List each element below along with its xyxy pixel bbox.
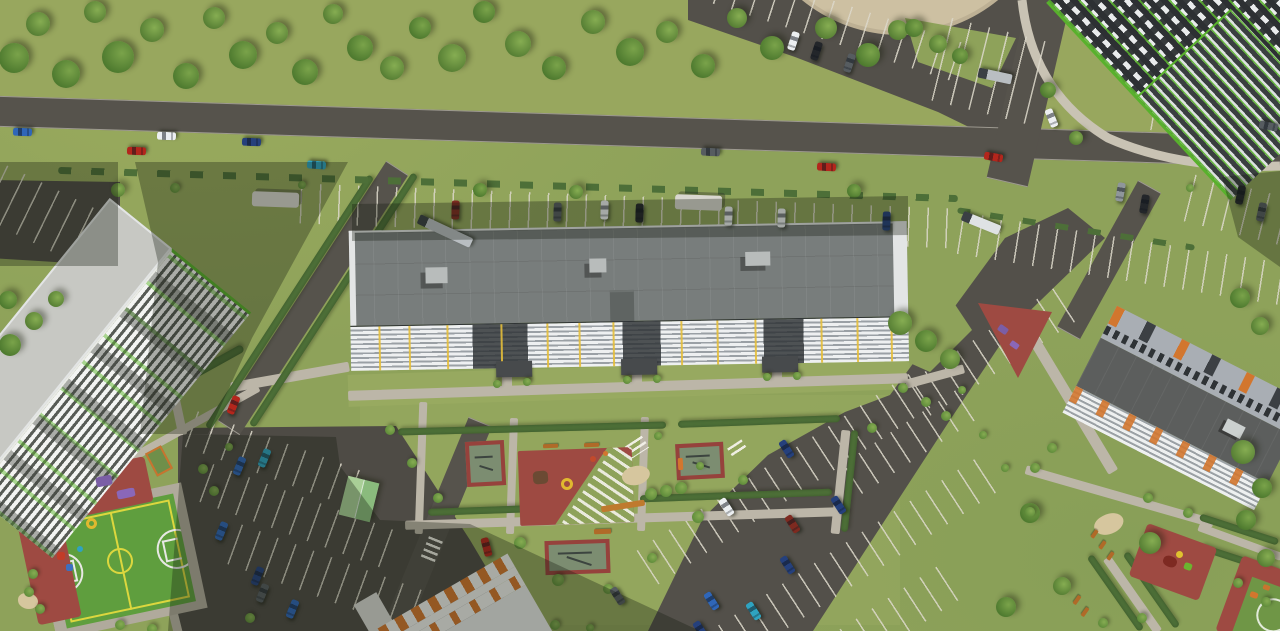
play-equipment: [1176, 551, 1183, 558]
tree: [323, 4, 343, 24]
apartment-building-central: [349, 221, 910, 383]
cast-shadow: [0, 0, 1280, 631]
car: [787, 31, 800, 52]
green-island: [0, 0, 1280, 631]
car: [882, 211, 891, 230]
car: [810, 41, 823, 62]
tree: [25, 312, 43, 330]
bush: [1143, 493, 1153, 503]
parking-stall-lines: [686, 450, 1010, 631]
truck: [977, 68, 1012, 85]
car: [1256, 202, 1268, 222]
bush: [35, 604, 45, 614]
workout-area: [544, 539, 610, 575]
tree: [347, 35, 373, 61]
bush: [941, 411, 951, 421]
tree: [505, 31, 531, 57]
bush: [958, 386, 966, 394]
facade-white-stripes: [1062, 386, 1267, 510]
apartment-building-bottom: [378, 554, 553, 631]
parking-stall-lines: [1150, 97, 1280, 154]
sports-court-pad: [30, 482, 207, 631]
hedge-row: [957, 207, 1195, 250]
footpath: [637, 417, 649, 531]
green-islands-layer: [0, 0, 1280, 631]
hedge-row: [1087, 554, 1144, 631]
cast-shadow: [0, 0, 1280, 631]
sports-court: [44, 493, 196, 628]
car: [724, 206, 733, 225]
tree: [691, 54, 715, 78]
footpath: [158, 336, 188, 436]
court-arc-left: [44, 549, 87, 596]
green-island: [0, 0, 1280, 631]
play-equipment: [1262, 584, 1270, 591]
bush: [654, 432, 662, 440]
play-equipment-layer: [0, 0, 1280, 631]
parking-stall-lines: [0, 166, 119, 273]
car: [232, 456, 247, 477]
tree: [1252, 478, 1272, 498]
workout-area: [675, 442, 725, 480]
car: [609, 586, 626, 606]
car: [692, 620, 709, 631]
tree: [409, 17, 431, 39]
car: [257, 448, 272, 469]
facade-yellow-accent: [680, 321, 683, 365]
bush: [586, 624, 594, 631]
benches-layer: [0, 0, 1280, 631]
play-equipment: [95, 474, 113, 487]
tree: [727, 8, 747, 28]
bush: [692, 511, 704, 523]
bench: [543, 444, 558, 449]
tree: [1236, 510, 1256, 530]
tree: [940, 349, 960, 369]
play-equipment: [603, 451, 608, 456]
parking-lot-asphalt: [0, 0, 1280, 631]
tree: [0, 334, 21, 356]
parking-stall-lines: [185, 411, 362, 507]
road: [1057, 180, 1161, 340]
tree: [1053, 577, 1071, 595]
car: [777, 208, 786, 227]
footpath: [632, 370, 642, 386]
facade-orange-band: [378, 554, 515, 631]
bush: [675, 482, 687, 494]
bush: [653, 375, 661, 383]
plaza-circle: [745, 0, 1055, 35]
parking-lot-asphalt: [0, 0, 1280, 631]
tree: [815, 17, 837, 39]
car: [307, 160, 327, 169]
aerial-render-residential-complex: [0, 0, 1280, 631]
mini-court: [1232, 577, 1280, 631]
bush: [24, 587, 34, 597]
car: [600, 200, 609, 219]
footpaths-layer: [0, 0, 1280, 631]
bush: [898, 383, 908, 393]
road: [218, 161, 409, 435]
hedge-row: [58, 167, 958, 202]
bush: [433, 493, 443, 503]
tree: [847, 184, 861, 198]
car: [480, 537, 493, 557]
footpath: [1197, 523, 1280, 561]
tree: [48, 291, 64, 307]
play-equipment: [532, 470, 548, 484]
court-key-right: [162, 538, 182, 563]
facade-yellow-accent: [754, 320, 757, 364]
car: [703, 591, 720, 611]
crosswalk: [727, 439, 748, 458]
apartment-building-left: [0, 198, 251, 558]
entrance-canopy: [496, 361, 532, 378]
footpath: [502, 372, 512, 388]
play-equipment: [57, 552, 65, 560]
footpath: [1025, 465, 1215, 527]
utility-shed: [339, 476, 380, 523]
bush: [1030, 463, 1040, 473]
bush: [1183, 508, 1193, 518]
bench: [1072, 595, 1081, 605]
footpath: [1029, 336, 1118, 475]
central-playground: [518, 447, 635, 526]
facade-yellow-accent: [716, 320, 719, 364]
facade-white-band: [385, 567, 519, 631]
parking-stall-lines: [637, 366, 944, 585]
hedge-row: [59, 344, 245, 452]
tree: [438, 44, 466, 72]
tree: [473, 1, 495, 23]
car: [1115, 182, 1126, 202]
bush: [170, 183, 180, 193]
hedges-layer: [0, 0, 1280, 631]
bush: [1233, 578, 1243, 588]
facade-green-accents: [1048, 0, 1280, 198]
tree: [292, 59, 318, 85]
car: [451, 200, 460, 219]
court-boundary-line: [50, 499, 190, 622]
bush: [1261, 597, 1271, 607]
hedge-row: [428, 503, 590, 516]
bush: [1098, 618, 1108, 628]
kids-playground: [1215, 555, 1280, 631]
bush: [209, 486, 219, 496]
facade-orange-band: [389, 573, 525, 631]
bush: [245, 613, 255, 623]
truck: [961, 211, 1002, 235]
kids-playground: [1129, 523, 1218, 601]
tree: [888, 311, 912, 335]
footpath: [772, 368, 782, 384]
footpath: [405, 507, 841, 530]
lawn-strip: [360, 395, 900, 625]
parking-stall-lines: [1184, 175, 1280, 246]
tree: [1230, 288, 1250, 308]
bush: [147, 624, 157, 631]
playground-surface: [46, 456, 153, 522]
bush: [514, 537, 526, 549]
bush: [738, 475, 748, 485]
parking-stall-lines: [728, 560, 968, 631]
bench: [1098, 540, 1106, 550]
tree: [915, 330, 937, 352]
car: [1258, 120, 1278, 132]
car: [843, 53, 856, 74]
hedge-row: [640, 489, 832, 503]
parking-stall-lines: [199, 464, 405, 572]
bus-shelter: [675, 194, 722, 211]
roof-parapet: [349, 231, 357, 326]
facade-yellow-accent: [890, 317, 893, 361]
play-equipment: [561, 478, 573, 490]
cast-shadow: [0, 0, 1280, 631]
tree: [102, 41, 134, 73]
bush: [645, 488, 657, 500]
bush: [763, 373, 771, 381]
footpath: [125, 384, 260, 464]
car: [242, 138, 261, 147]
court-key-left: [58, 560, 78, 585]
footpath: [39, 321, 232, 435]
bush: [793, 372, 801, 380]
play-equipment: [1183, 562, 1193, 571]
facade-yellow-accent: [856, 318, 859, 362]
mini-court-circle: [1252, 594, 1280, 631]
tree: [266, 22, 288, 44]
playground-stripe-pattern: [562, 447, 634, 526]
tree: [1069, 131, 1083, 145]
parking-stall-lines: [909, 284, 1082, 416]
sandbox: [1091, 508, 1127, 540]
building-roof: [349, 221, 909, 326]
car: [214, 521, 229, 542]
crosswalk: [420, 536, 443, 564]
bush: [298, 181, 306, 189]
balance-beam: [601, 500, 645, 513]
bush: [1025, 507, 1035, 517]
bush: [493, 380, 501, 388]
footpath: [16, 471, 65, 631]
tree: [905, 19, 923, 37]
bush: [1186, 184, 1194, 192]
car: [226, 395, 241, 416]
court-midline: [110, 512, 133, 610]
footpath: [1103, 556, 1162, 631]
play-equipment: [1009, 340, 1020, 350]
car: [718, 497, 735, 517]
lawn-strip: [348, 357, 911, 407]
road: [381, 417, 492, 631]
parking-lot-asphalt: [0, 0, 1280, 631]
bench: [584, 443, 599, 448]
workout-area: [465, 440, 506, 487]
car: [250, 566, 265, 587]
bush: [979, 431, 987, 439]
tree: [173, 63, 199, 89]
tree: [888, 20, 908, 40]
car: [701, 148, 720, 157]
car: [745, 601, 762, 621]
car: [983, 151, 1003, 162]
car: [553, 202, 562, 221]
lawn-layer: [0, 0, 1280, 631]
bush: [660, 485, 672, 497]
facade-yellow-accent: [820, 319, 823, 363]
bush: [115, 620, 125, 630]
car: [285, 599, 300, 620]
playground-grass-cut: [549, 447, 634, 526]
tree: [760, 36, 784, 60]
truck: [417, 214, 474, 248]
building-roof: [396, 585, 553, 631]
tree: [952, 48, 968, 64]
road: [0, 96, 1280, 168]
curved-sidewalk: [0, 0, 1280, 631]
tree: [0, 43, 29, 73]
hedge-row: [398, 421, 666, 435]
bush: [407, 458, 417, 468]
building-roof: [1076, 338, 1280, 484]
car: [779, 555, 796, 575]
tree: [1231, 440, 1255, 464]
court-center-circle: [105, 546, 136, 577]
tree: [542, 56, 566, 80]
hedge-row: [41, 307, 230, 417]
tree: [111, 183, 125, 197]
tree: [0, 291, 17, 309]
facade-yellow-accent: [378, 326, 381, 370]
bush: [1137, 613, 1147, 623]
car: [778, 439, 795, 459]
play-equipment: [66, 564, 73, 571]
footpath: [230, 362, 350, 393]
hedge-row: [205, 174, 374, 429]
tree: [1040, 82, 1056, 98]
apartment-building-right: [1062, 306, 1280, 511]
footpath: [348, 373, 908, 401]
bush: [1047, 443, 1057, 453]
parking-stall-lines: [227, 524, 443, 631]
rooftop-unit: [425, 267, 447, 283]
bus-shelter: [252, 191, 299, 208]
bush: [921, 397, 931, 407]
vehicles-layer: [0, 0, 1280, 631]
rooftop-unit: [1222, 418, 1246, 439]
sandbox: [620, 462, 653, 489]
rooftop-shaft: [610, 290, 635, 322]
tree: [1020, 503, 1040, 523]
facade-yellow-accent: [408, 326, 411, 370]
building-roof: [0, 198, 172, 494]
parking-stall-lines: [695, 0, 974, 84]
car: [784, 514, 801, 534]
crosswalk: [625, 436, 649, 459]
hedge-row: [1123, 551, 1180, 629]
grass-base: [0, 0, 1280, 631]
car: [1139, 194, 1150, 214]
car: [817, 163, 836, 172]
car: [157, 132, 176, 141]
bush: [867, 423, 877, 433]
tree: [1139, 532, 1161, 554]
tree: [380, 56, 404, 80]
car: [255, 583, 270, 604]
cast-shadow: [0, 0, 1280, 631]
bush: [603, 584, 613, 594]
footpath: [415, 402, 428, 534]
tree: [581, 10, 605, 34]
footpath: [831, 430, 851, 534]
parking-asphalt-layer: [0, 0, 1280, 631]
playground-surface: [14, 501, 82, 626]
parking-stall-lines: [957, 212, 1280, 305]
rooftop-unit: [745, 252, 770, 266]
tree: [203, 7, 225, 29]
tree: [229, 41, 257, 69]
facade-orange-checker: [1101, 306, 1280, 436]
bush: [1001, 464, 1009, 472]
hedge-row: [1199, 544, 1279, 576]
court-arc-right: [153, 525, 196, 572]
tree: [569, 185, 583, 199]
play-equipment: [678, 458, 684, 470]
car: [1044, 108, 1059, 129]
car: [13, 128, 32, 137]
car: [127, 147, 146, 156]
building-wall: [354, 592, 397, 631]
facade-yellow-accent: [546, 323, 549, 367]
tree: [856, 43, 880, 67]
bench: [594, 529, 611, 535]
hedge-row: [1199, 514, 1279, 546]
parking-stall-lines: [931, 18, 1058, 127]
facade-yellow-accent: [578, 323, 581, 367]
flower-planter: [145, 445, 173, 476]
tree: [1251, 317, 1269, 335]
tree: [26, 12, 50, 36]
bush: [696, 462, 704, 470]
bench: [1080, 607, 1089, 617]
play-equipment: [590, 456, 596, 462]
bush: [523, 378, 531, 386]
bush: [647, 553, 657, 563]
building-facade-green-stripes: [0, 248, 251, 558]
parking-stall-lines: [299, 183, 955, 248]
tree: [84, 1, 106, 23]
bush: [28, 569, 38, 579]
building-facade-yellow-accents: [350, 316, 909, 371]
tree: [656, 21, 678, 43]
facade-window-row: [1103, 325, 1280, 431]
facade-yellow-accent: [500, 324, 503, 368]
parking-lot-asphalt: [0, 0, 1280, 631]
footpath: [905, 364, 965, 388]
apartment-building-top-right: [1046, 0, 1280, 200]
tree: [929, 35, 947, 53]
entrance-canopy: [621, 359, 657, 376]
facade-yellow-accent: [446, 325, 449, 369]
play-equipment: [1249, 591, 1259, 599]
trees-layer: [0, 0, 1280, 631]
tree: [473, 183, 487, 197]
bush: [623, 376, 631, 384]
tree: [140, 18, 164, 42]
bush: [552, 574, 564, 586]
play-equipment: [997, 324, 1009, 335]
footpath: [151, 540, 184, 631]
